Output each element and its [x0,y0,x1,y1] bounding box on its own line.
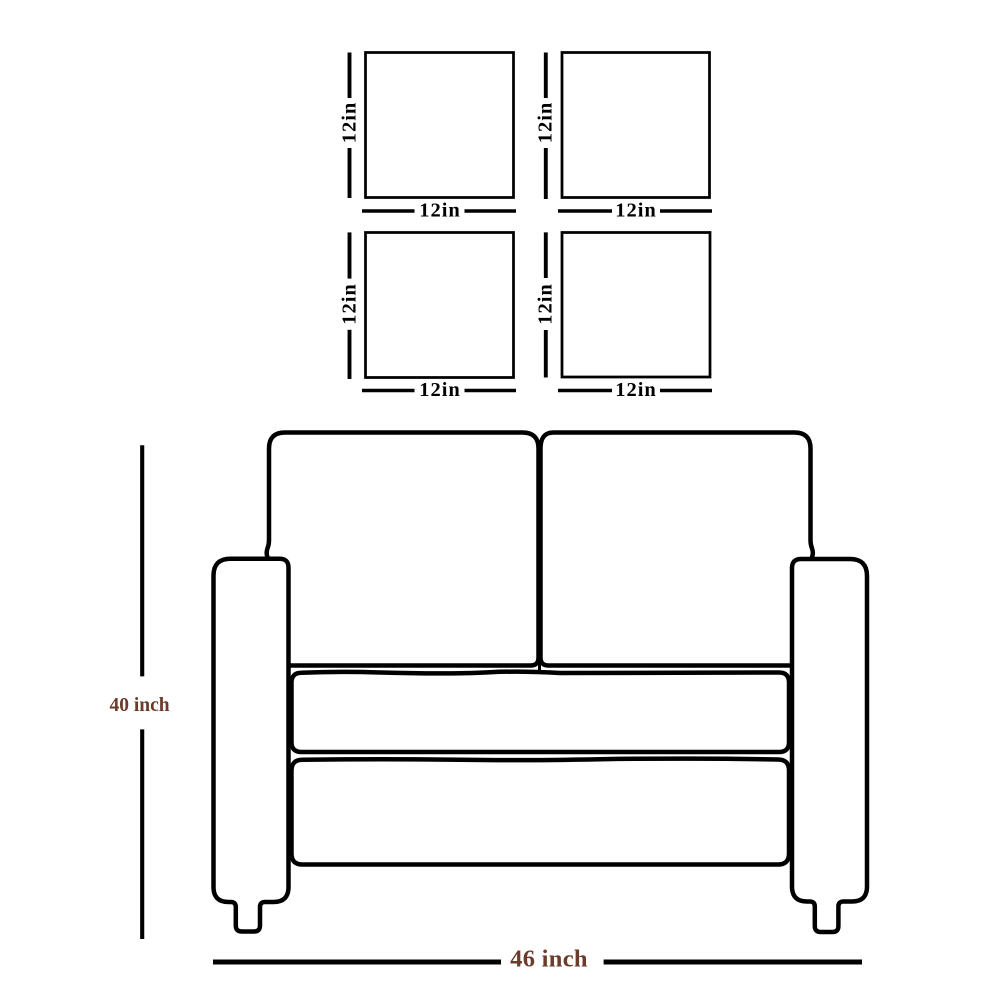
svg-text:12in: 12in [615,379,657,401]
svg-text:12in: 12in [419,200,461,222]
svg-text:46 inch: 46 inch [510,946,588,973]
svg-text:40 inch: 40 inch [110,695,170,716]
svg-text:12in: 12in [615,200,657,222]
svg-text:12in: 12in [339,102,361,144]
svg-text:12in: 12in [535,283,557,325]
svg-text:12in: 12in [419,379,461,401]
svg-text:12in: 12in [339,283,361,325]
svg-text:12in: 12in [535,102,557,144]
